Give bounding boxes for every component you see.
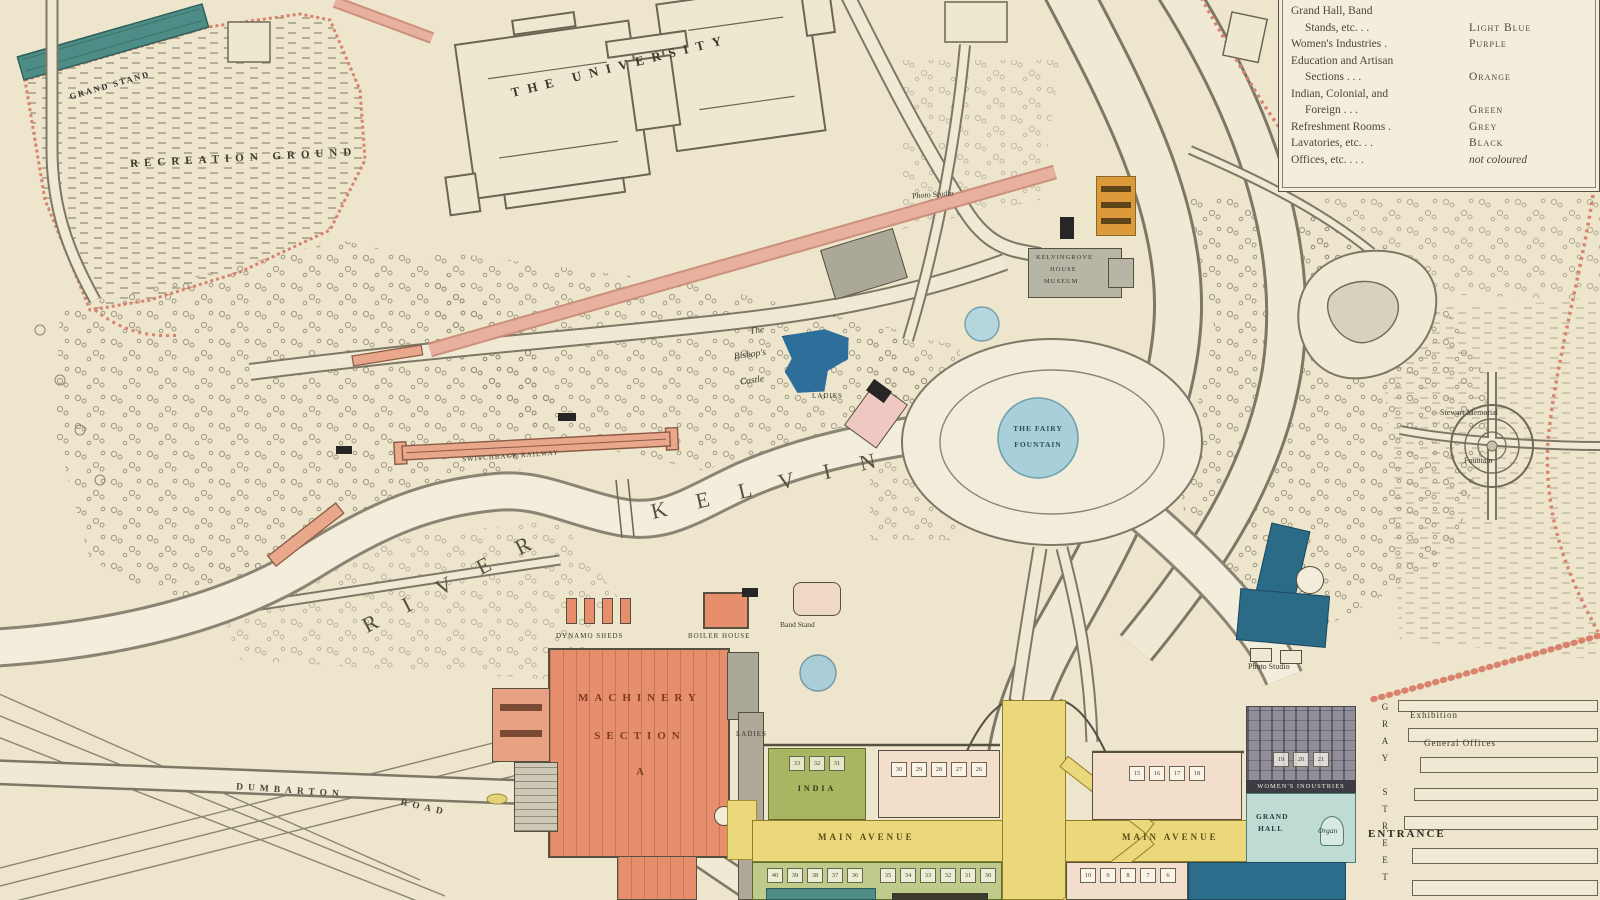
stand-row-west-lower: 4039383736 <box>760 868 870 883</box>
kelvingrove-label-line2: HOUSE <box>1050 266 1077 273</box>
stewart-fountain-label-line1: Stewart Memorial <box>1440 408 1498 417</box>
machinery-section-building <box>548 648 730 858</box>
stand-number-cell: 9 <box>1100 868 1116 883</box>
legend-row-label: Refreshment Rooms . <box>1291 119 1469 136</box>
dynamo-shed <box>584 598 595 624</box>
office-range <box>1414 788 1598 801</box>
dynamo-shed <box>620 598 631 624</box>
dynamo-sheds-label: DYNAMO SHEDS <box>556 632 623 640</box>
gray-street-label: GRAY STREET <box>1380 702 1390 900</box>
legend-row: Sections . . .Orange <box>1291 69 1585 86</box>
stand-number-cell: 30 <box>891 762 907 777</box>
cutoff-label-bar <box>892 893 988 900</box>
legend-row: Women's Industries .Purple <box>1291 36 1585 53</box>
machinery-annex-east <box>727 652 759 720</box>
stand-number-cell: 34 <box>900 868 916 883</box>
legend-row-color-value: not coloured <box>1469 152 1585 169</box>
stand-number-cell: 30 <box>980 868 996 883</box>
grand-hall-label-line1: GRAND <box>1256 812 1289 821</box>
stewart-fountain-label-line2: Fountain <box>1464 456 1492 465</box>
machinery-annex-west <box>492 688 550 762</box>
machinery-label-line1: MACHINERY <box>575 692 705 704</box>
stand-number-cell: 31 <box>829 756 845 771</box>
stand-row-mid-lower: 353433323130 <box>878 868 998 883</box>
machinery-label-line3: A <box>575 766 705 778</box>
stand-number-cell: 39 <box>787 868 803 883</box>
stand-number-cell: 29 <box>911 762 927 777</box>
lavatory-block <box>558 413 576 421</box>
legend-row-color-value: Orange <box>1469 69 1585 86</box>
ladies-label-machinery: LADIES <box>736 730 767 738</box>
west-courts <box>878 750 1000 818</box>
legend-row-color-value: Light Blue <box>1469 20 1585 37</box>
stand-number-cell: 8 <box>1120 868 1136 883</box>
office-range <box>1412 880 1598 896</box>
stand-number-cell: 26 <box>971 762 987 777</box>
legend-row-color-value <box>1469 53 1585 70</box>
grand-hall-label-line2: HALL <box>1258 824 1283 833</box>
legend-row: Education and Artisan <box>1291 53 1585 70</box>
recreation-ground-pavilion <box>228 22 270 62</box>
legend-row: Offices, etc. . . .not coloured <box>1291 152 1585 169</box>
kelvingrove-label-line1: KELVINGROVE <box>1036 254 1093 261</box>
exhibition-label: Exhibition <box>1410 710 1458 720</box>
band-stand-label: Band Stand <box>780 620 815 629</box>
legend-row: Lavatories, etc. . .Black <box>1291 135 1585 152</box>
stand-number-cell: 7 <box>1140 868 1156 883</box>
legend-row-color-value <box>1469 3 1585 20</box>
legend-row-label: Women's Industries . <box>1291 36 1469 53</box>
stand-number-cell: 27 <box>951 762 967 777</box>
kelvingrove-museum-wing <box>1108 258 1134 288</box>
stand-number-cell: 17 <box>1169 766 1185 781</box>
map-legend: Grand Hall, BandStands, etc. . .Light Bl… <box>1278 0 1600 192</box>
stand-number-cell: 32 <box>809 756 825 771</box>
organ-label: Organ <box>1318 826 1337 835</box>
stand-row-green-upper: 333231 <box>770 756 864 771</box>
stand-number-cell: 40 <box>767 868 783 883</box>
kiosk <box>1250 648 1272 662</box>
lavatory-block <box>336 446 352 454</box>
machinery-annex-stairs <box>514 762 558 832</box>
legend-row-color-value: Purple <box>1469 36 1585 53</box>
stand-number-cell: 38 <box>807 868 823 883</box>
blue-hall-building-south <box>1236 588 1330 648</box>
cutoff-teal-bar <box>766 888 876 900</box>
dynamo-shed <box>566 598 577 624</box>
bandstand-circle <box>1296 566 1324 594</box>
central-avenue <box>1002 700 1066 900</box>
stand-row-east-upper: 15161718 <box>1094 766 1240 781</box>
machinery-label-line2: SECTION <box>575 730 705 742</box>
womens-industries-building <box>1246 706 1356 782</box>
legend-row-label: Education and Artisan <box>1291 53 1469 70</box>
womens-industries-label: WOMEN'S INDUSTRIES <box>1257 783 1345 790</box>
stand-number-cell: 18 <box>1189 766 1205 781</box>
stand-number-cell: 16 <box>1149 766 1165 781</box>
machinery-annex-label-bar <box>500 730 542 737</box>
stand-row-east-lower: 109876 <box>1070 868 1186 883</box>
legend-row-label: Lavatories, etc. . . <box>1291 135 1469 152</box>
stand-number-cell: 15 <box>1129 766 1145 781</box>
stand-number-cell: 20 <box>1293 752 1309 767</box>
legend-row-label: Indian, Colonial, and <box>1291 86 1469 103</box>
stand-number-cell: 35 <box>880 868 896 883</box>
stand-number-cell: 37 <box>827 868 843 883</box>
stand-row-west-upper: 3029282726 <box>880 762 998 777</box>
legend-row-label: Foreign . . . <box>1291 102 1469 119</box>
dynamo-shed <box>602 598 613 624</box>
kelvingrove-label-line3: MUSEUM <box>1044 278 1079 285</box>
legend-row: Refreshment Rooms .Grey <box>1291 119 1585 136</box>
lavatory-block <box>1060 217 1074 239</box>
ladies-label-park: LADIES <box>812 392 843 400</box>
stand-number-cell: 19 <box>1273 752 1289 767</box>
university-building <box>423 0 853 216</box>
fairy-fountain-label-line2: FOUNTAIN <box>998 440 1078 449</box>
india-label: INDIA <box>768 784 866 793</box>
boiler-house-label: BOILER HOUSE <box>688 632 750 640</box>
office-range <box>1412 848 1598 864</box>
stand-row-hall-upper: 192021 <box>1252 752 1350 767</box>
east-courts <box>1092 752 1242 820</box>
legend-row-label: Stands, etc. . . <box>1291 20 1469 37</box>
stand-number-cell: 21 <box>1313 752 1329 767</box>
legend-row-color-value: Grey <box>1469 119 1585 136</box>
stand-number-cell: 10 <box>1080 868 1096 883</box>
boiler-house <box>703 592 749 629</box>
fairy-fountain-label-line1: THE FAIRY <box>998 424 1078 433</box>
machinery-annex-label-bar <box>500 704 542 711</box>
stand-number-cell: 6 <box>1160 868 1176 883</box>
legend-row-label: Grand Hall, Band <box>1291 3 1469 20</box>
stand-number-cell: 33 <box>920 868 936 883</box>
stand-number-cell: 31 <box>960 868 976 883</box>
stand-number-cell: 36 <box>847 868 863 883</box>
legend-row-color-value: Green <box>1469 102 1585 119</box>
concert-hall-block <box>1188 862 1346 900</box>
photo-studio-label-east: Photo Studio <box>1248 662 1290 671</box>
lavatory-block <box>742 588 758 597</box>
exhibition-plan-map: 333231 3029282726 15161718 192021 WOMEN'… <box>0 0 1600 900</box>
legend-rows: Grand Hall, BandStands, etc. . .Light Bl… <box>1282 0 1596 188</box>
stand-number-cell: 32 <box>940 868 956 883</box>
legend-row-color-value <box>1469 86 1585 103</box>
legend-row: Indian, Colonial, and <box>1291 86 1585 103</box>
legend-row-label: Offices, etc. . . . <box>1291 152 1469 169</box>
legend-row: Foreign . . .Green <box>1291 102 1585 119</box>
stand-number-cell: 28 <box>931 762 947 777</box>
legend-row-label: Sections . . . <box>1291 69 1469 86</box>
machinery-section-annex-south <box>617 856 697 900</box>
legend-row: Stands, etc. . .Light Blue <box>1291 20 1585 37</box>
band-stand-structure <box>793 582 841 616</box>
stand-number-cell: 33 <box>789 756 805 771</box>
main-avenue-label-west: MAIN AVENUE <box>818 832 915 842</box>
main-avenue-label-east: MAIN AVENUE <box>1122 832 1219 842</box>
legend-row: Grand Hall, Band <box>1291 3 1585 20</box>
general-offices-label: General Offices <box>1424 738 1496 748</box>
bishops-castle-label-line1: The <box>749 325 765 337</box>
legend-row-color-value: Black <box>1469 135 1585 152</box>
office-range <box>1420 757 1598 773</box>
